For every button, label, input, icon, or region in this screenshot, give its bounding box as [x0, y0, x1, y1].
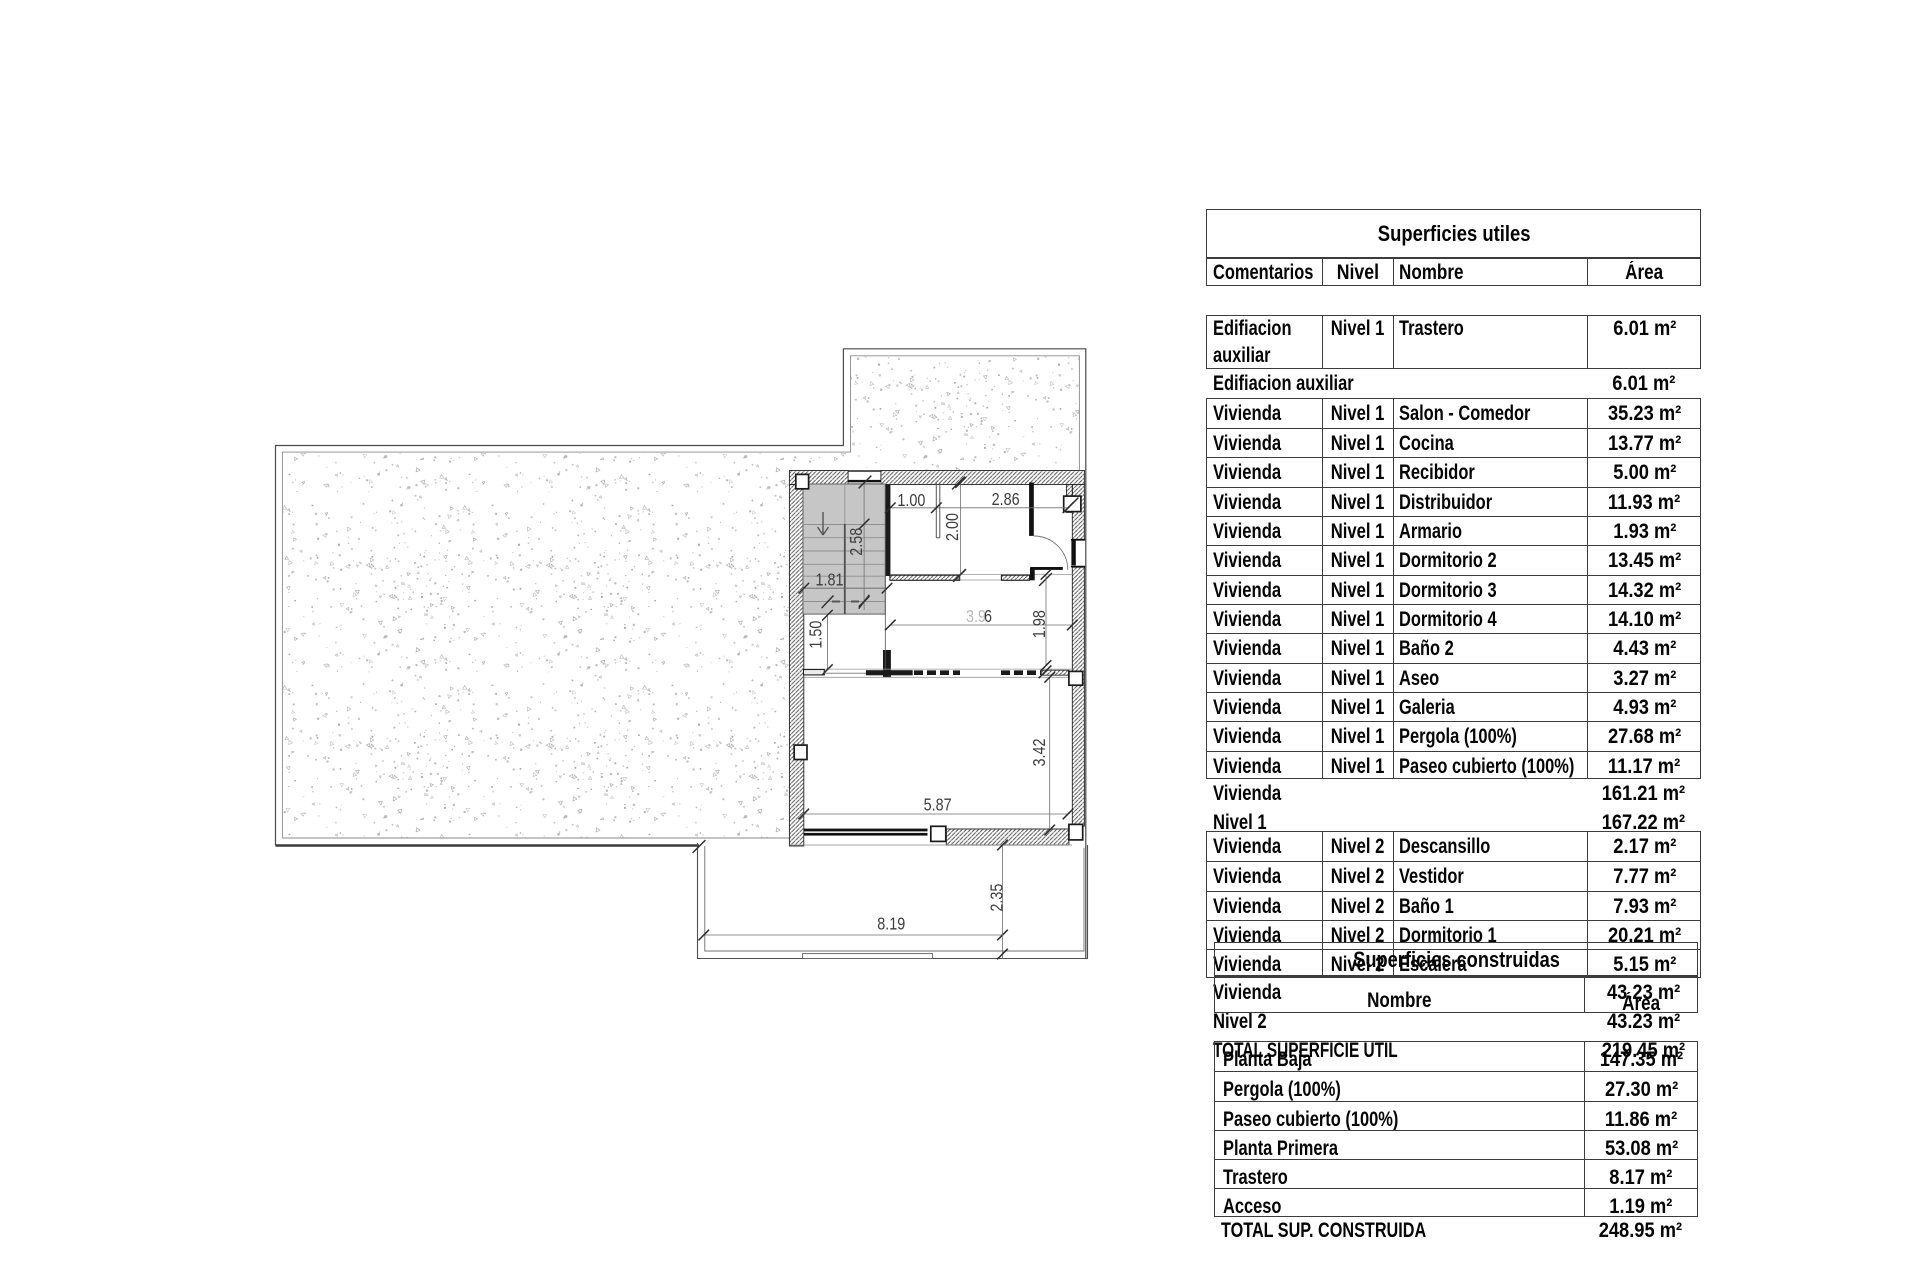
svg-text:8.19: 8.19 [877, 914, 905, 934]
svg-text:2.00: 2.00 [943, 513, 963, 541]
svg-text:2.35: 2.35 [987, 884, 1007, 912]
svg-text:6: 6 [984, 607, 992, 627]
svg-text:1.00: 1.00 [897, 490, 925, 510]
svg-text:3.9: 3.9 [966, 607, 986, 627]
svg-text:1.98: 1.98 [1029, 610, 1049, 638]
svg-text:2.58: 2.58 [847, 528, 867, 556]
svg-text:3.42: 3.42 [1030, 738, 1050, 766]
svg-text:1.81: 1.81 [815, 570, 843, 590]
svg-text:5.87: 5.87 [924, 795, 952, 815]
svg-text:1.50: 1.50 [806, 621, 826, 649]
svg-text:2.86: 2.86 [992, 489, 1020, 509]
